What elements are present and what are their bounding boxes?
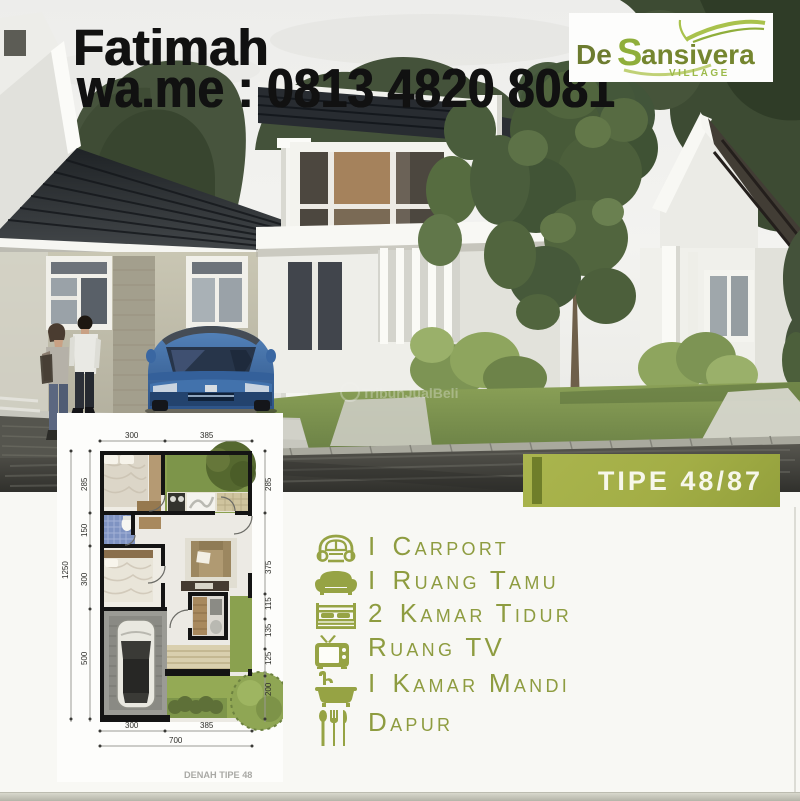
svg-text:1250: 1250 [61,561,70,579]
svg-text:300: 300 [125,431,139,440]
svg-text:135: 135 [264,623,273,637]
svg-text:150: 150 [80,523,89,537]
svg-text:DENAH TIPE 48: DENAH TIPE 48 [184,770,252,780]
svg-text:385: 385 [200,431,214,440]
svg-text:285: 285 [264,477,273,491]
svg-text:De: De [576,39,612,70]
svg-text:VILLAGE: VILLAGE [669,68,730,79]
svg-text:700: 700 [169,736,183,745]
svg-text:285: 285 [80,477,89,491]
svg-text:125: 125 [264,651,273,665]
svg-text:200: 200 [264,682,273,696]
svg-text:300: 300 [125,721,139,730]
svg-text:300: 300 [80,572,89,586]
svg-text:375: 375 [264,560,273,574]
svg-text:TribunJualBeli: TribunJualBeli [362,385,458,401]
svg-text:S: S [617,32,642,74]
svg-text:385: 385 [200,721,214,730]
svg-text:ansivera: ansivera [641,39,755,70]
svg-text:115: 115 [264,597,273,610]
svg-text:500: 500 [80,651,89,665]
